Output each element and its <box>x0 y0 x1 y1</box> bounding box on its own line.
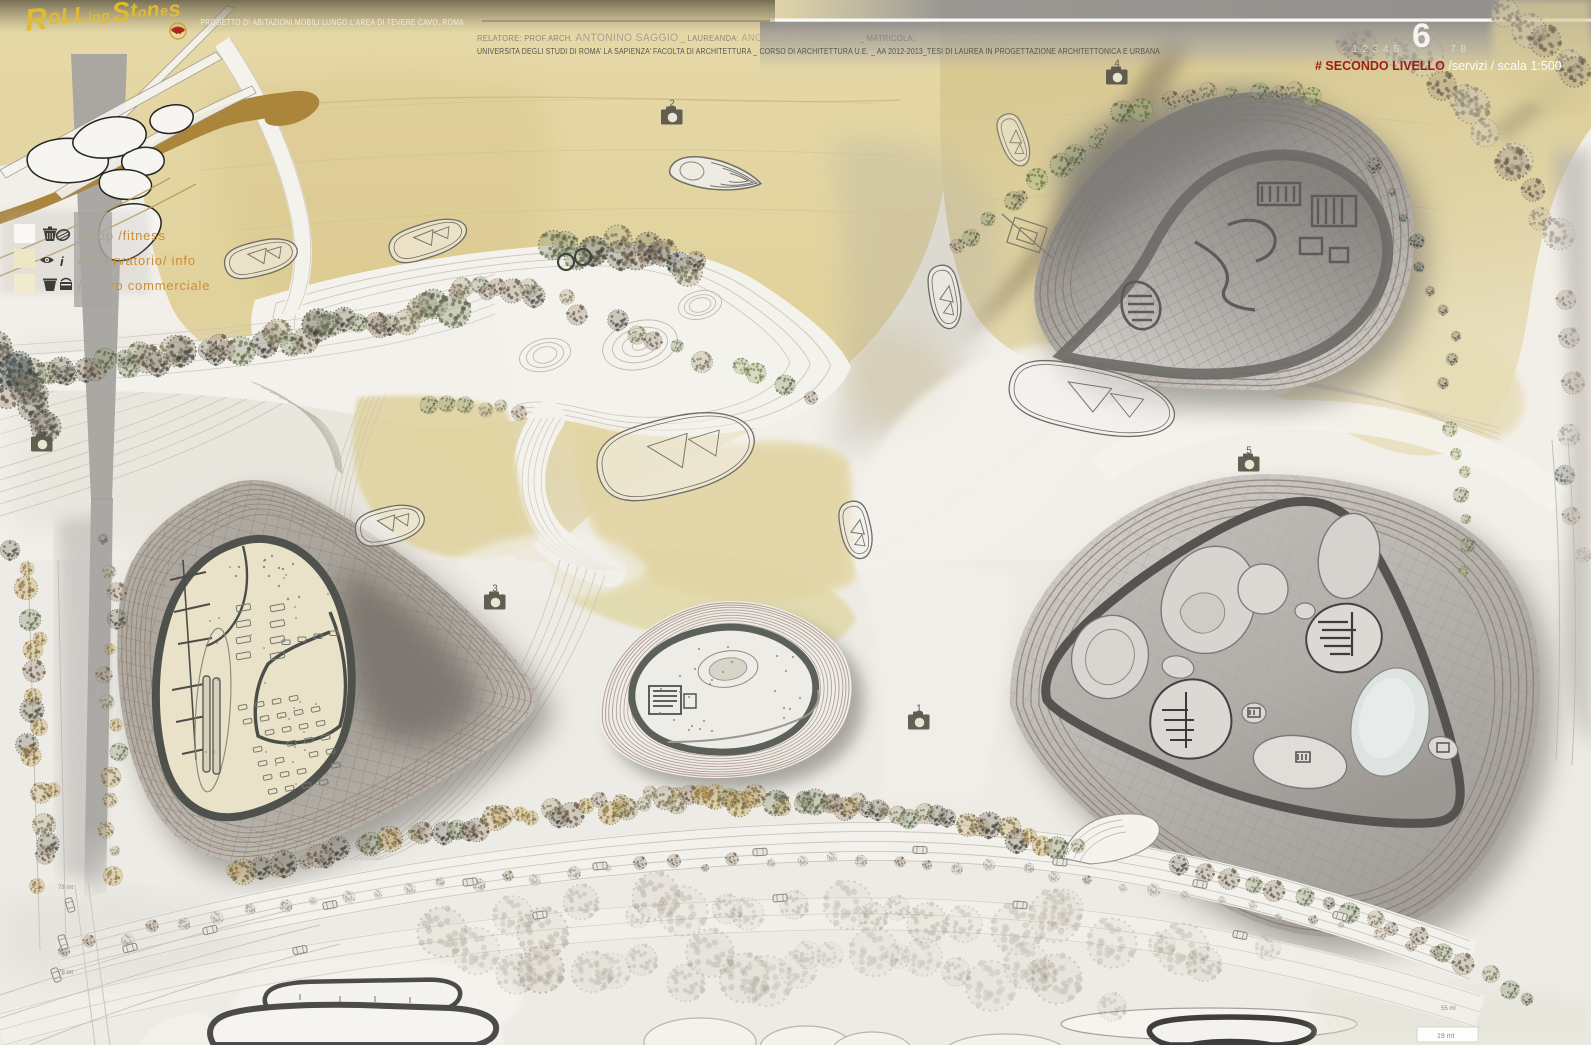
svg-text:55 ml: 55 ml <box>1441 1006 1456 1012</box>
svg-text:6: 6 <box>1412 17 1431 55</box>
svg-text:78 mt: 78 mt <box>58 885 73 891</box>
svg-text:UNIVERSITA DEGLI STUDI DI ROMA: UNIVERSITA DEGLI STUDI DI ROMA’ LA SAPIE… <box>477 47 1160 56</box>
svg-text:12345: 12345 <box>1352 43 1404 55</box>
svg-text:: PROGETTO DI ABITAZIONI MOBIL: : PROGETTO DI ABITAZIONI MOBILI LUNGO L'… <box>196 18 464 27</box>
svg-text:RELATORE: PROF.ARCH. ANTONINO: RELATORE: PROF.ARCH. ANTONINO SAGGIO _ L… <box>477 32 1052 44</box>
svg-text:# SECONDO LIVELLO /servizi / s: # SECONDO LIVELLO /servizi / scala 1:500 <box>1315 59 1562 73</box>
svg-text:19 mt: 19 mt <box>1437 1033 1455 1040</box>
svg-text:i: i <box>60 254 64 269</box>
svg-text:78: 78 <box>1450 43 1471 55</box>
svg-text:79 mt: 79 mt <box>58 970 73 976</box>
